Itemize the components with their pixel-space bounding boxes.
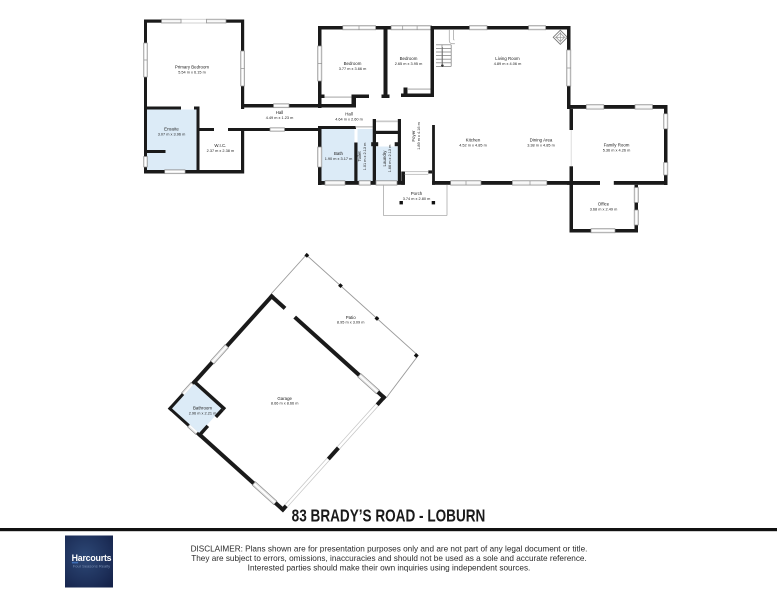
svg-text:3.68 m x 2.49 m: 3.68 m x 2.49 m — [590, 207, 618, 211]
svg-text:2.37 m x 2.38 m: 2.37 m x 2.38 m — [207, 149, 235, 153]
svg-text:8.95 m x 3.09 m: 8.95 m x 3.09 m — [337, 321, 365, 325]
svg-text:Bath: Bath — [334, 151, 344, 156]
svg-text:Dining Area: Dining Area — [530, 138, 553, 143]
svg-text:Garage: Garage — [277, 396, 292, 401]
svg-text:They are subject to errors, om: They are subject to errors, omissions, i… — [191, 554, 587, 563]
svg-text:3.07 m x 3.96 m: 3.07 m x 3.96 m — [158, 132, 186, 136]
svg-text:5.36 m x 4.26 m: 5.36 m x 4.26 m — [603, 149, 631, 153]
svg-text:Family Room: Family Room — [604, 143, 630, 148]
svg-text:Porch: Porch — [411, 191, 423, 196]
svg-text:4.89 m x 4.06 m: 4.89 m x 4.06 m — [494, 62, 522, 66]
svg-text:1.89 m x 4.16 m: 1.89 m x 4.16 m — [417, 122, 421, 150]
svg-text:DISCLAIMER: Plans shown are fo: DISCLAIMER: Plans shown are for presenta… — [191, 544, 588, 553]
svg-text:Bedroom: Bedroom — [400, 56, 418, 61]
svg-text:Hall: Hall — [345, 111, 353, 116]
svg-text:W.I.C.: W.I.C. — [214, 143, 226, 148]
svg-text:Four Seasons Realty: Four Seasons Realty — [73, 564, 110, 569]
svg-text:3.38 m x 4.85 m: 3.38 m x 4.85 m — [527, 144, 555, 148]
svg-text:Toilet: Toilet — [357, 151, 362, 162]
svg-text:Primary Bedroom: Primary Bedroom — [175, 65, 210, 70]
svg-text:5.54 m x 6.15 m: 5.54 m x 6.15 m — [178, 71, 206, 75]
svg-text:Patio: Patio — [346, 315, 357, 320]
svg-text:2.96 m x 2.21 m: 2.96 m x 2.21 m — [189, 412, 217, 416]
svg-text:3.74 m x 2.80 m: 3.74 m x 2.80 m — [403, 197, 431, 201]
svg-text:8.66 m x 8.66 m: 8.66 m x 8.66 m — [271, 402, 299, 406]
svg-text:Ensuite: Ensuite — [164, 127, 179, 132]
svg-text:4.49 m x 1.23 m: 4.49 m x 1.23 m — [266, 116, 294, 120]
svg-text:Living Room: Living Room — [495, 56, 520, 61]
svg-text:1.90 m x 3.17 m: 1.90 m x 3.17 m — [325, 157, 353, 161]
svg-text:Kitchen: Kitchen — [466, 138, 481, 143]
svg-text:Office: Office — [598, 202, 610, 207]
svg-text:Laundry: Laundry — [382, 150, 387, 167]
svg-text:Bedroom: Bedroom — [344, 61, 362, 66]
svg-text:Bathroom: Bathroom — [193, 406, 212, 411]
svg-text:4.64 m x 2.60 m: 4.64 m x 2.60 m — [335, 117, 363, 121]
svg-text:1.66 m x 2.13 m: 1.66 m x 2.13 m — [388, 145, 392, 173]
svg-text:Interested parties should make: Interested parties should make their own… — [248, 564, 531, 573]
svg-text:Harcourts: Harcourts — [72, 553, 112, 563]
svg-text:1.01 m x 2.13 m: 1.01 m x 2.13 m — [363, 143, 367, 171]
svg-text:2.65 m x 3.95 m: 2.65 m x 3.95 m — [395, 62, 423, 66]
svg-text:Foyer: Foyer — [411, 130, 416, 142]
svg-text:4.52 m x 4.85 m: 4.52 m x 4.85 m — [459, 144, 487, 148]
svg-text:3.77 m x 3.66 m: 3.77 m x 3.66 m — [339, 67, 367, 71]
svg-text:83 BRADY’S ROAD - LOBURN: 83 BRADY’S ROAD - LOBURN — [292, 507, 486, 526]
svg-text:Hall: Hall — [276, 110, 284, 115]
